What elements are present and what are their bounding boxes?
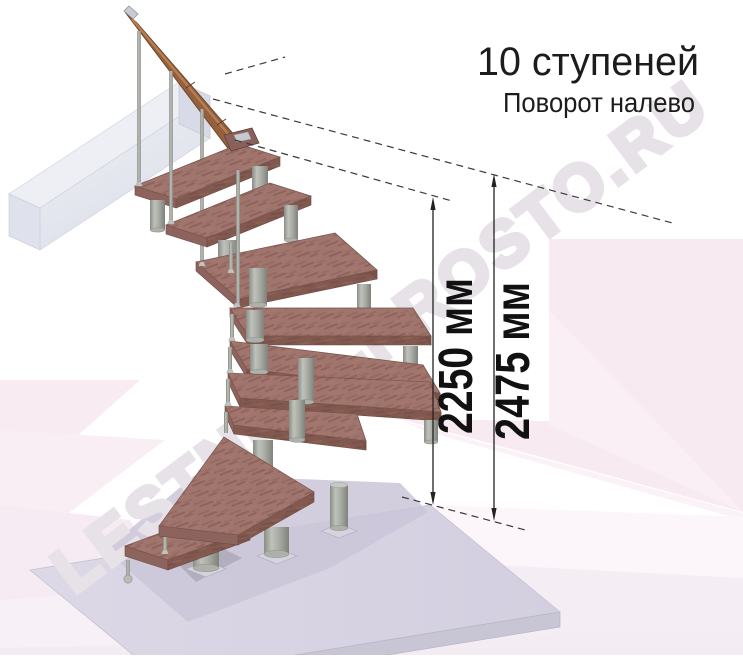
svg-text:2475 мм: 2475 мм — [487, 282, 540, 440]
svg-text:10 ступеней: 10 ступеней — [477, 40, 699, 84]
svg-text:Поворот налево: Поворот налево — [503, 87, 695, 118]
svg-text:2250 мм: 2250 мм — [430, 278, 483, 434]
